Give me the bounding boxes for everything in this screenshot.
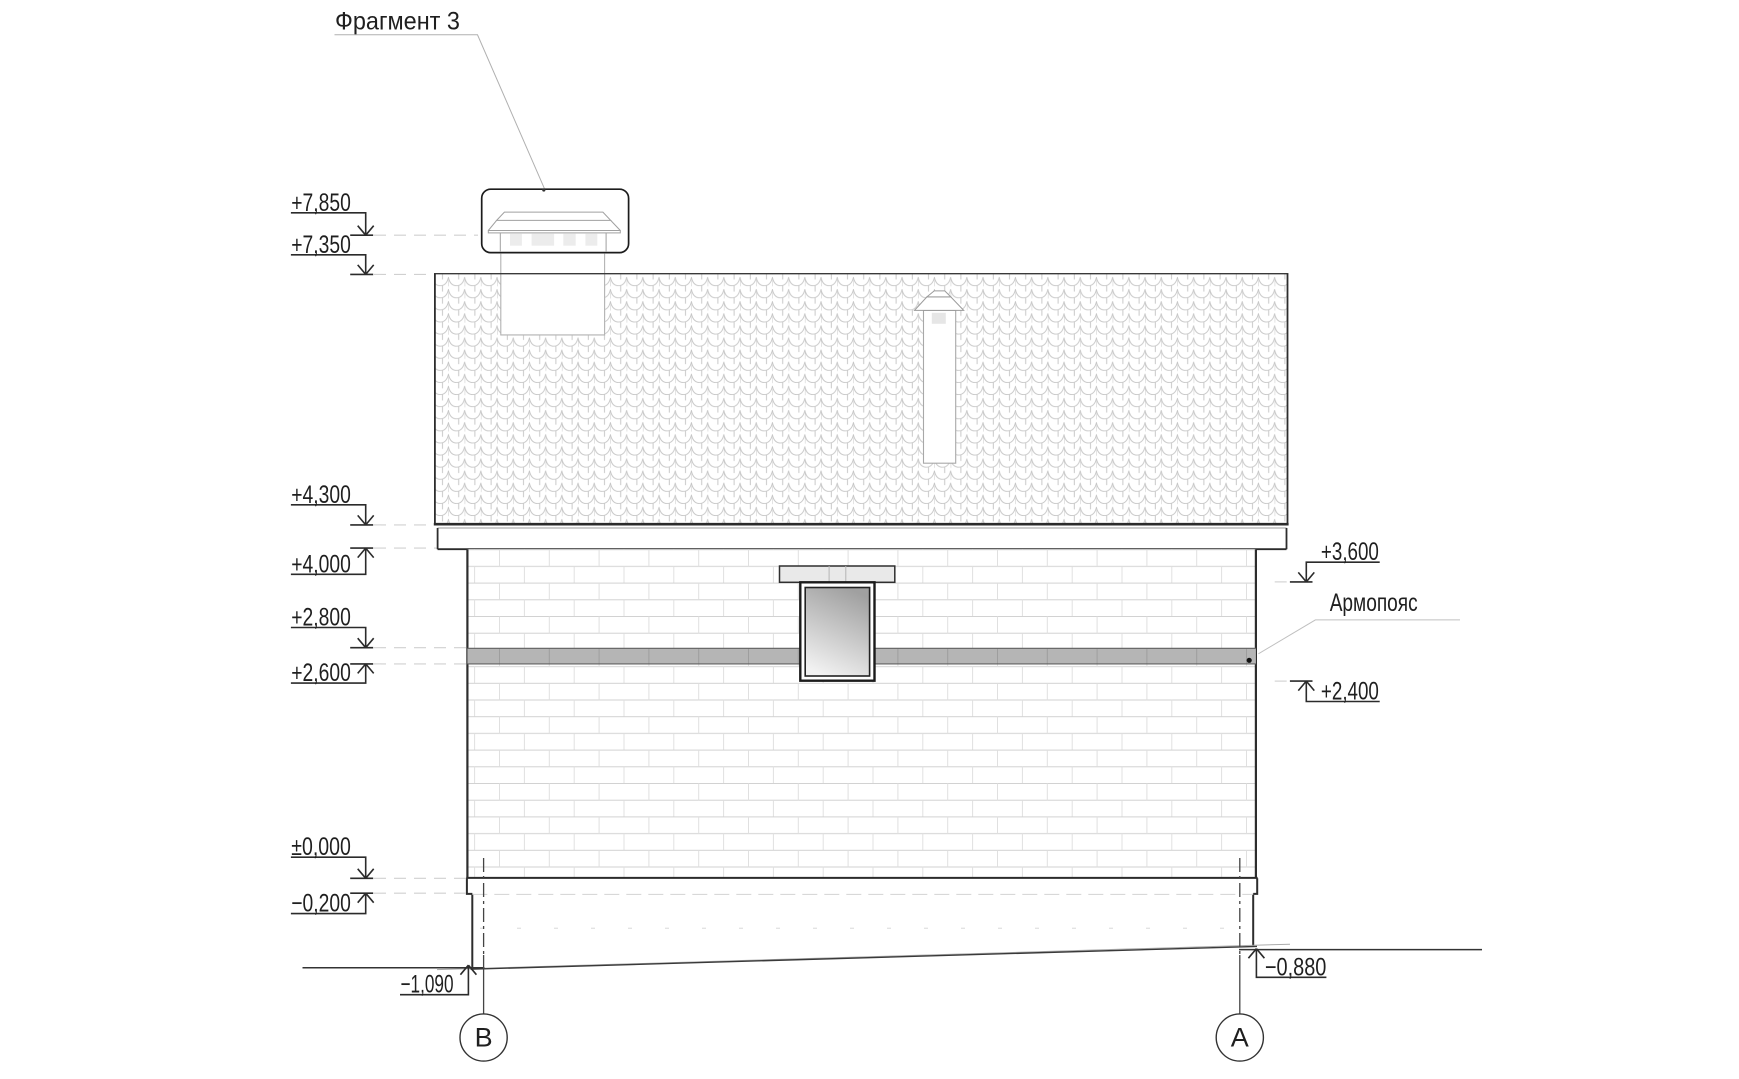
svg-text:+2,600: +2,600 bbox=[291, 659, 351, 687]
svg-text:В: В bbox=[475, 1023, 493, 1053]
svg-text:±0,000: ±0,000 bbox=[291, 833, 351, 861]
svg-text:+7,350: +7,350 bbox=[291, 231, 351, 259]
svg-text:+3,600: +3,600 bbox=[1321, 538, 1379, 566]
svg-text:Армопояс: Армопояс bbox=[1330, 589, 1418, 617]
svg-text:+2,800: +2,800 bbox=[291, 604, 351, 632]
svg-text:−1,090: −1,090 bbox=[401, 971, 454, 999]
svg-text:−0,200: −0,200 bbox=[291, 890, 351, 918]
svg-text:−0,880: −0,880 bbox=[1265, 953, 1327, 981]
svg-text:+4,000: +4,000 bbox=[291, 550, 351, 578]
svg-text:+7,850: +7,850 bbox=[291, 189, 351, 217]
svg-text:А: А bbox=[1231, 1023, 1249, 1053]
svg-text:Фрагмент 3: Фрагмент 3 bbox=[335, 8, 460, 36]
svg-text:+2,400: +2,400 bbox=[1321, 678, 1379, 706]
svg-text:+4,300: +4,300 bbox=[291, 481, 351, 509]
